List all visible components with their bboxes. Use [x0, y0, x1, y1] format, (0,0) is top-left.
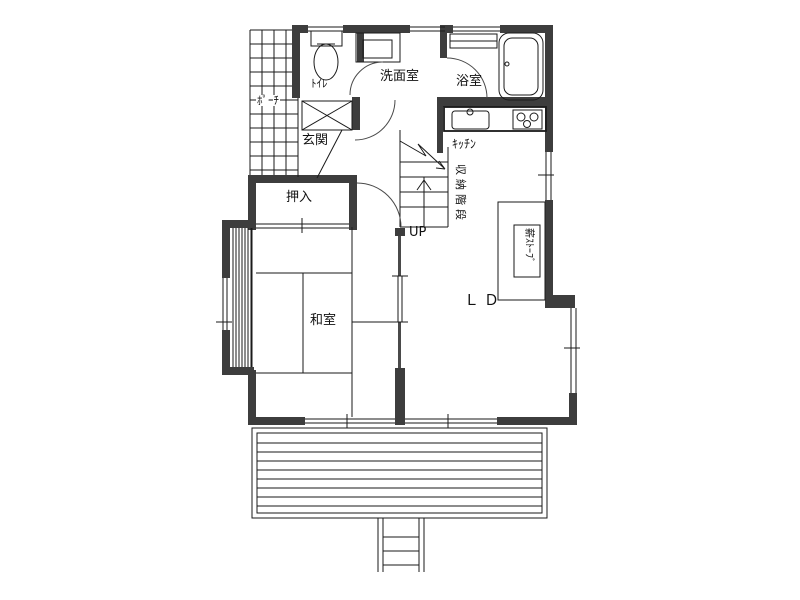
room-label-bathroom: 浴室: [456, 75, 482, 88]
wood-stove-label: 薪ｽﾄｰﾌﾞ: [523, 228, 533, 263]
room-label-toilet: ﾄｲﾚ: [311, 78, 328, 89]
room-label-porch: ﾎﾟｰﾁ: [256, 95, 280, 106]
room-label-kitchen: ｷｯﾁﾝ: [452, 138, 476, 150]
room-label-washroom: 洗面室: [380, 70, 419, 83]
room-label-closet: 押入: [286, 191, 312, 204]
room-label-entrance: 玄関: [302, 134, 328, 147]
stairs-up-label: UP: [409, 226, 426, 239]
room-label-japanese-room: 和室: [310, 314, 336, 327]
room-label-living-dining: ＬＤ: [464, 293, 504, 308]
thin-lines: [216, 27, 580, 572]
storage-stairs-label: 収納階段: [455, 164, 466, 224]
floorplan-geometry: [0, 0, 800, 600]
floorplan-canvas: ﾎﾟｰﾁ ﾄｲﾚ 洗面室 浴室 玄関 押入 和室 ｷｯﾁﾝ ＬＤ UP 収納階段…: [0, 0, 800, 600]
